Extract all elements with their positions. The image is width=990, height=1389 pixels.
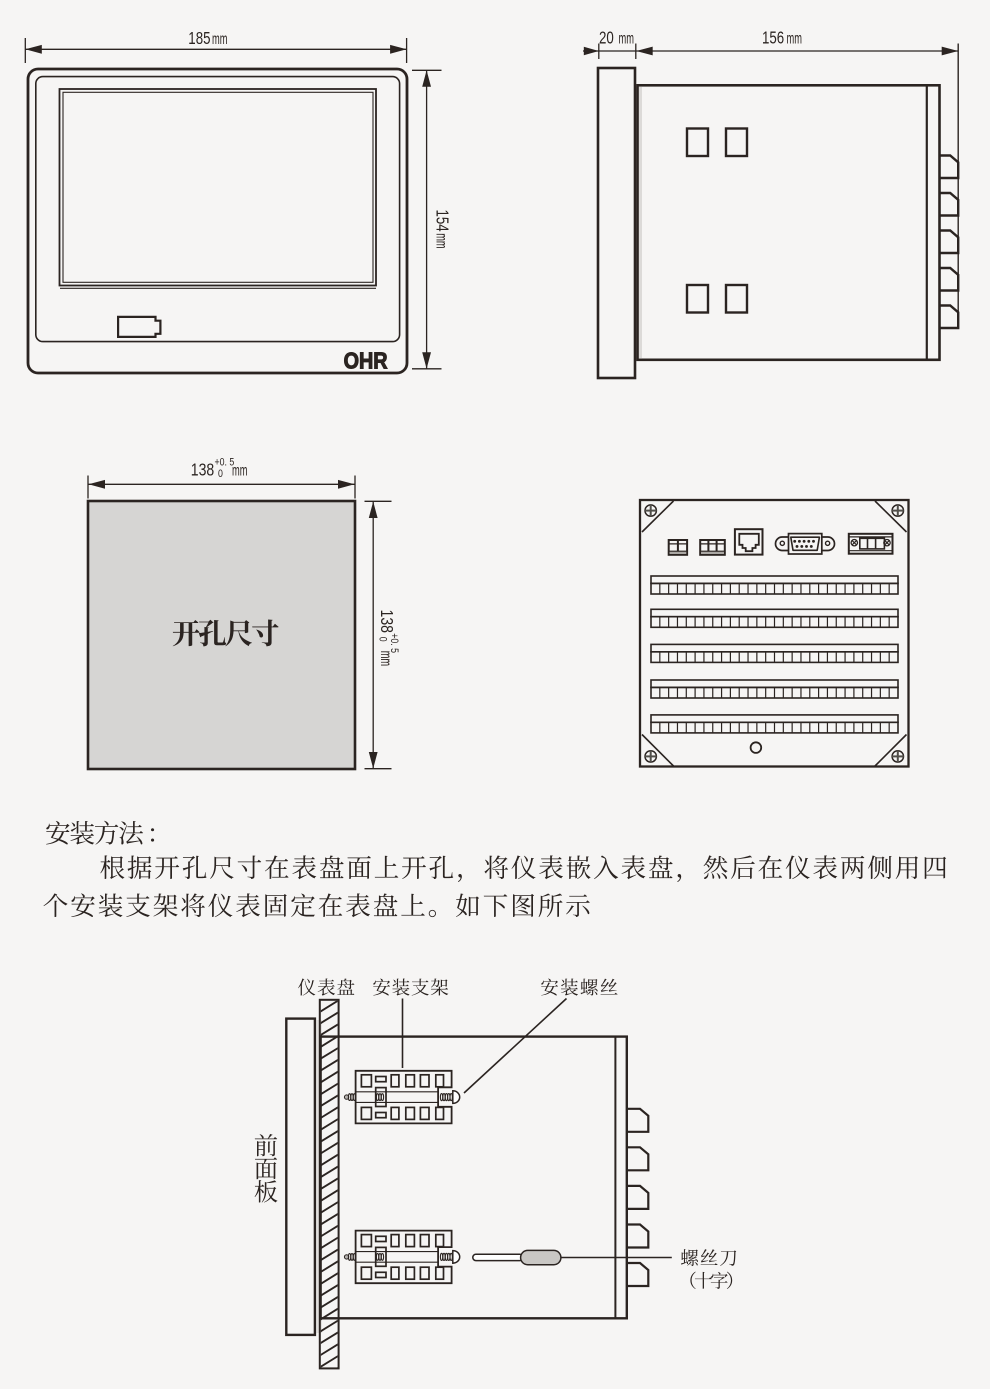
svg-text:138: 138 <box>191 460 215 480</box>
svg-text:156: 156 <box>762 29 784 48</box>
svg-text:mm: mm <box>433 233 451 249</box>
svg-text:154: 154 <box>432 210 451 232</box>
svg-text:OHR: OHR <box>344 347 388 374</box>
svg-text:185: 185 <box>188 29 210 48</box>
svg-text:20: 20 <box>599 29 614 48</box>
svg-text:mm: mm <box>619 29 635 47</box>
svg-text:mm: mm <box>377 651 395 667</box>
svg-text:mm: mm <box>232 461 248 479</box>
svg-text:mm: mm <box>787 29 803 47</box>
svg-text:0: 0 <box>218 468 223 480</box>
svg-text:mm: mm <box>212 29 228 47</box>
svg-text:138: 138 <box>377 610 397 634</box>
svg-text:0: 0 <box>376 637 388 642</box>
